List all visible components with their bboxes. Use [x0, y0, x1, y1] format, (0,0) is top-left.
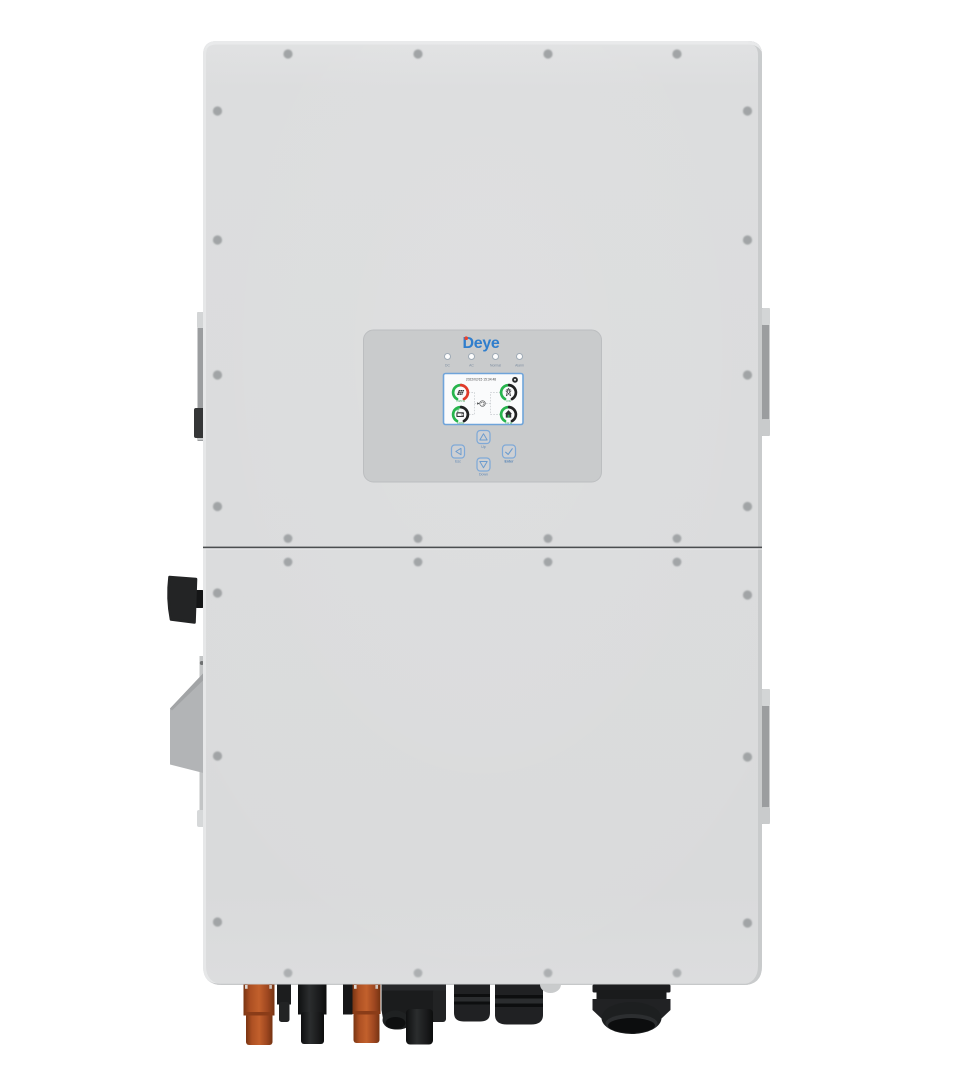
- svg-text:Deye: Deye: [462, 335, 499, 352]
- svg-text:Alarm: Alarm: [515, 364, 524, 368]
- svg-text:731 W: 731 W: [505, 421, 513, 425]
- svg-text:Normal: Normal: [490, 364, 501, 368]
- svg-text:Down: Down: [479, 473, 488, 477]
- svg-text:Esc: Esc: [455, 460, 461, 464]
- svg-text:7025 W: 7025 W: [456, 399, 465, 403]
- svg-text:Enter: Enter: [505, 460, 515, 464]
- svg-text:Up: Up: [481, 445, 486, 449]
- svg-text:2022/02/15 15:34:48: 2022/02/15 15:34:48: [466, 378, 496, 382]
- svg-text:DC: DC: [445, 364, 450, 368]
- svg-text:0 W: 0 W: [506, 399, 511, 403]
- svg-text:100%: 100%: [457, 421, 464, 425]
- svg-text:AC: AC: [469, 364, 474, 368]
